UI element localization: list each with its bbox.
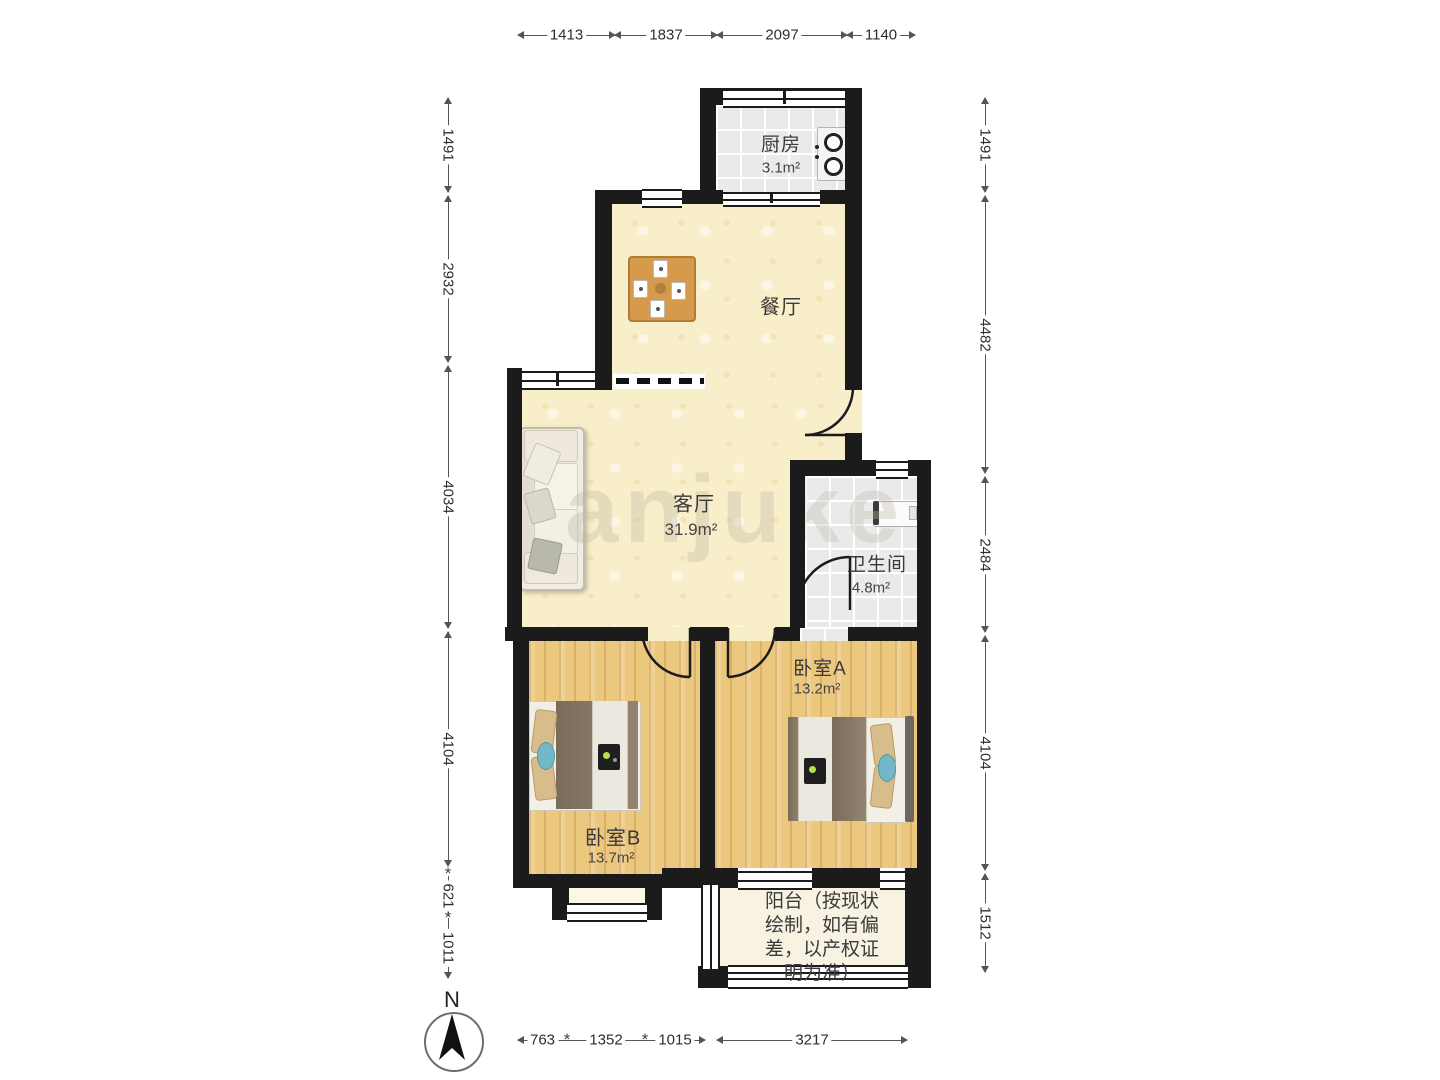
balcony-note-line: 差，以产权证: [765, 938, 879, 962]
dim-top-2: 1837: [615, 27, 717, 43]
balcony-note: 阳台（按现状 绘制，如有偏 差，以产权证 明为准）: [765, 890, 879, 986]
dim-bottom-1: 763: [518, 1032, 567, 1048]
floorplan-canvas: anjuke: [0, 0, 1440, 1080]
bedroom-a-label: 卧室A: [793, 654, 847, 681]
kitchen-label: 厨房: [761, 130, 801, 157]
bedroom-b-area: 13.7m²: [588, 850, 635, 867]
dim-bottom-3: 1015: [645, 1032, 705, 1048]
kitchen-area: 3.1m²: [762, 160, 800, 177]
bedroom-b-label: 卧室B: [585, 822, 641, 851]
north-label: N: [444, 987, 460, 1013]
dim-left-3: 4034: [440, 366, 456, 628]
dim-right-5: 1512: [977, 874, 993, 972]
living-label: 客厅: [673, 488, 715, 517]
dim-right-2: 4482: [977, 196, 993, 473]
doors-overlay: [0, 0, 1440, 1080]
dining-label: 餐厅: [760, 291, 802, 320]
dim-left-4: 4104: [440, 632, 456, 866]
dim-tick: *: [445, 908, 452, 928]
dim-tick: *: [445, 864, 452, 884]
compass-circle: [424, 1012, 484, 1072]
living-area: 31.9m²: [665, 520, 718, 540]
balcony-note-line: 阳台（按现状: [765, 890, 879, 914]
dim-right-3: 2484: [977, 477, 993, 632]
entry-door-arc: [805, 387, 853, 435]
dim-right-4: 4104: [977, 636, 993, 870]
dim-bottom-2: 1352: [567, 1032, 645, 1048]
dim-left-2: 2932: [440, 196, 456, 362]
bedroom-a-area: 13.2m²: [794, 681, 841, 698]
bathroom-area: 4.8m²: [852, 580, 890, 597]
dim-top-1: 1413: [518, 27, 615, 43]
bathroom-door-arc: [797, 557, 850, 610]
balcony-note-line: 绘制，如有偏: [765, 914, 879, 938]
dim-tick: *: [564, 1030, 571, 1050]
bathroom-label: 卫生间: [847, 550, 907, 577]
bedroom-b-door-arc: [642, 628, 690, 677]
dim-bottom-4: 3217: [717, 1032, 907, 1048]
dim-top-4: 1140: [847, 27, 915, 43]
dim-top-3: 2097: [717, 27, 847, 43]
dim-tick: *: [642, 1030, 649, 1050]
dim-left-1: 1491: [440, 98, 456, 192]
dim-right-1: 1491: [977, 98, 993, 192]
bedroom-a-door-arc: [728, 628, 775, 677]
balcony-note-line: 明为准）: [765, 962, 879, 986]
